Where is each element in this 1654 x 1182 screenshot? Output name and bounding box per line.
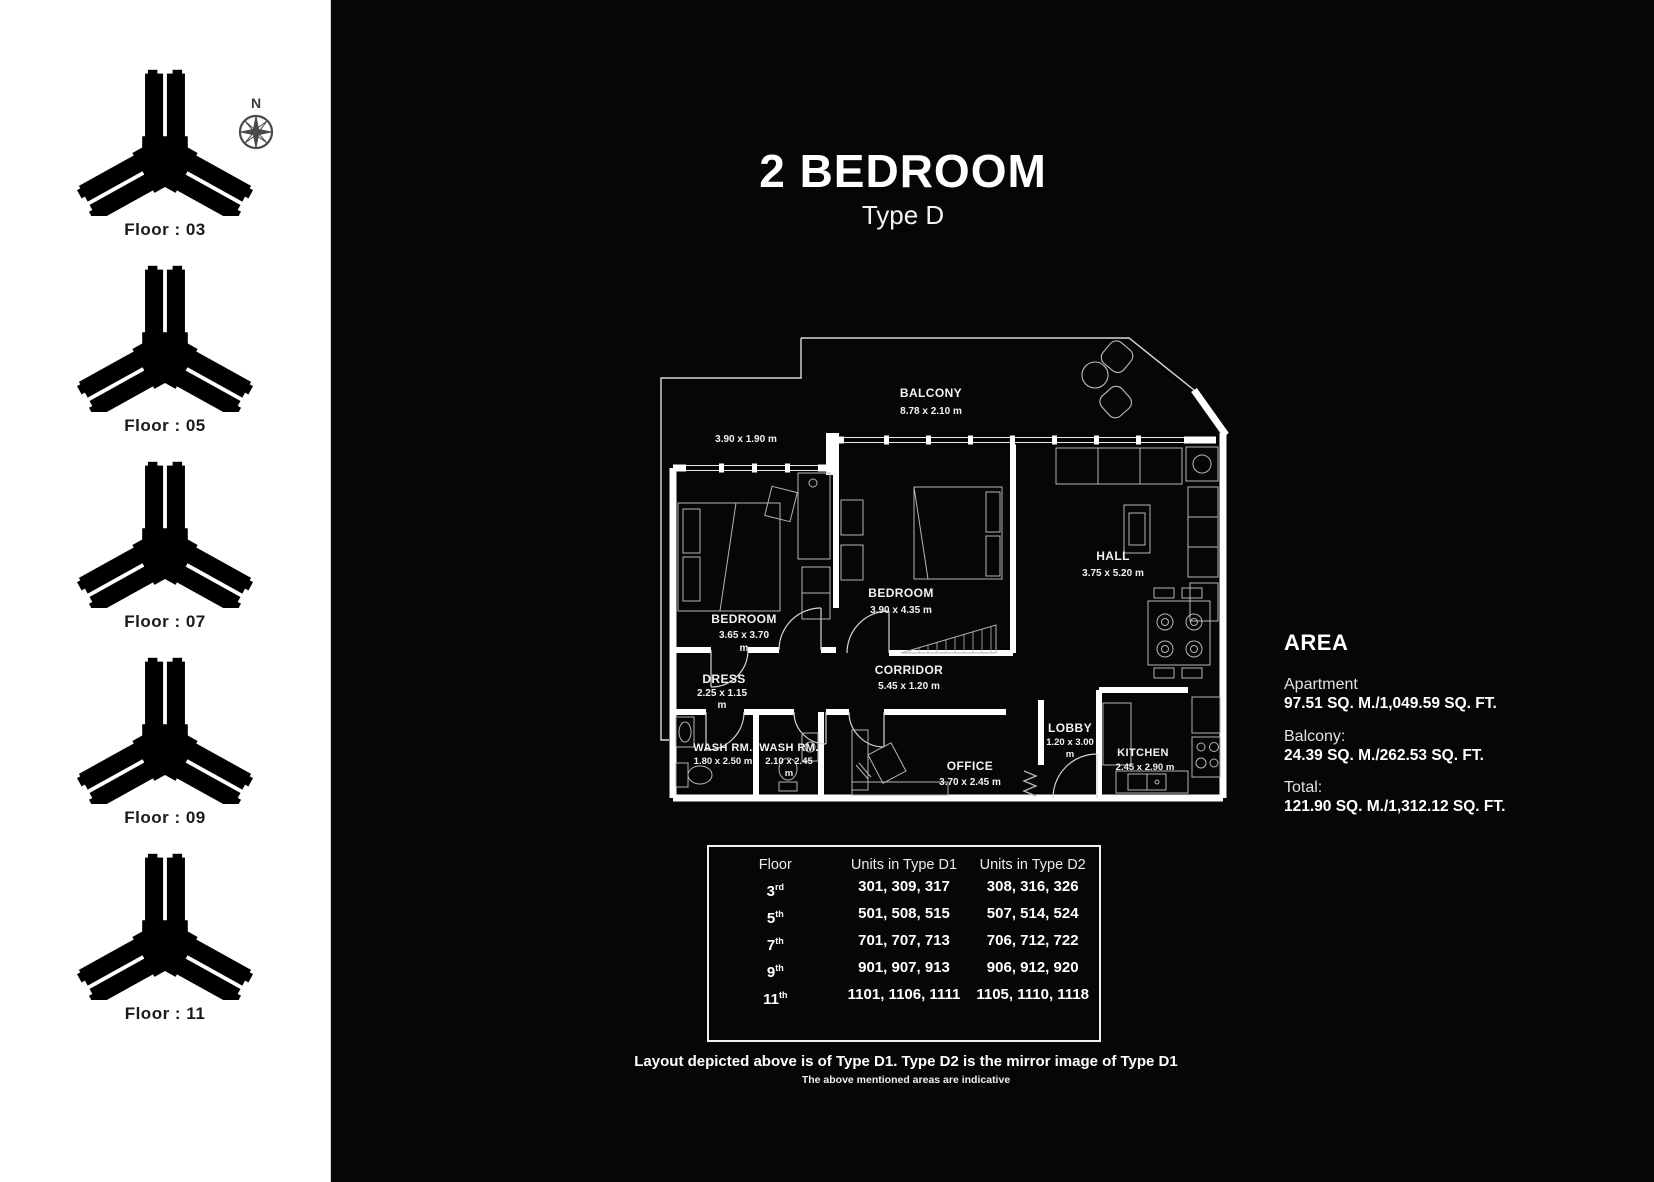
area-item-value: 97.51 SQ. M./1,049.59 SQ. FT. xyxy=(1284,694,1604,714)
room-label-bedroom1: BEDROOM xyxy=(711,612,776,626)
key-plan-floor-05: Floor : 05 xyxy=(0,262,330,436)
area-item-label: Balcony: xyxy=(1284,728,1604,746)
room-label-kitchen: KITCHEN xyxy=(1117,747,1169,759)
cell-units-d1: 701, 707, 713 xyxy=(842,930,967,957)
tower-plan-icon xyxy=(76,850,254,1000)
balcony-furniture xyxy=(1082,338,1136,421)
area-heading: AREA xyxy=(1284,630,1604,656)
bedroom1-furniture xyxy=(678,473,830,619)
room-dims-bedroom2: 3.90 x 4.35 m xyxy=(870,605,932,616)
col-header-type-d2: Units in Type D2 xyxy=(966,854,1099,876)
tower-plan-icon xyxy=(76,458,254,608)
floor-label: Floor : 09 xyxy=(0,808,330,828)
table-row: 7th 701, 707, 713 706, 712, 722 xyxy=(709,930,1099,957)
area-item-label: Apartment xyxy=(1284,676,1604,694)
area-item-apartment: Apartment 97.51 SQ. M./1,049.59 SQ. FT. xyxy=(1284,676,1604,715)
footer-note-main: Layout depicted above is of Type D1. Typ… xyxy=(606,1053,1206,1070)
room-label-washrm2: WASH RM. xyxy=(759,742,818,754)
footer-note-disclaimer: The above mentioned areas are indicative xyxy=(606,1074,1206,1086)
cell-units-d2: 1105, 1110, 1118 xyxy=(966,984,1099,1011)
key-plan-sidebar: N xyxy=(0,0,330,1182)
table-row: 3rd 301, 309, 317 308, 316, 326 xyxy=(709,876,1099,903)
room-dims-lobby: 1.20 x 3.00 xyxy=(1046,737,1094,748)
cell-units-d2: 308, 316, 326 xyxy=(966,876,1099,903)
cell-floor: 5th xyxy=(709,903,842,930)
room-dims-office: 3.70 x 2.45 m xyxy=(939,777,1001,788)
key-plan-floor-07: Floor : 07 xyxy=(0,458,330,632)
room-dims2-dress: m xyxy=(718,700,727,711)
area-panel: AREA Apartment 97.51 SQ. M./1,049.59 SQ.… xyxy=(1284,630,1604,831)
cell-floor: 11th xyxy=(709,984,842,1011)
area-item-total: Total: 121.90 SQ. M./1,312.12 SQ. FT. xyxy=(1284,779,1604,818)
room-label-office: OFFICE xyxy=(947,759,993,773)
units-table: Floor Units in Type D1 Units in Type D2 … xyxy=(707,845,1101,1042)
hall-furniture xyxy=(1056,447,1218,678)
cell-units-d2: 906, 912, 920 xyxy=(966,957,1099,984)
floor-label: Floor : 11 xyxy=(0,1004,330,1024)
area-item-value: 24.39 SQ. M./262.53 SQ. FT. xyxy=(1284,746,1604,766)
floor-label: Floor : 05 xyxy=(0,416,330,436)
room-dims-washrm1: 1.80 x 2.50 m xyxy=(694,756,753,767)
tower-plan-icon xyxy=(76,66,254,216)
room-dims-hall: 3.75 x 5.20 m xyxy=(1082,568,1144,579)
cell-floor: 3rd xyxy=(709,876,842,903)
room-dims-bedroom1: 3.65 x 3.70 xyxy=(719,630,769,641)
tower-plan-icon xyxy=(76,262,254,412)
room-label-balcony: BALCONY xyxy=(900,386,962,400)
floor-label: Floor : 07 xyxy=(0,612,330,632)
table-row: 9th 901, 907, 913 906, 912, 920 xyxy=(709,957,1099,984)
area-item-label: Total: xyxy=(1284,779,1604,797)
units-table-header: Floor Units in Type D1 Units in Type D2 xyxy=(709,854,1099,876)
room-dims2-lobby: m xyxy=(1066,749,1074,760)
brochure-page: N xyxy=(0,0,1654,1182)
key-plan-floor-09: Floor : 09 xyxy=(0,654,330,828)
col-header-floor: Floor xyxy=(709,854,842,876)
cell-floor: 7th xyxy=(709,930,842,957)
floor-label: Floor : 03 xyxy=(0,220,330,240)
page-subtitle: Type D xyxy=(643,200,1163,231)
footer-notes: Layout depicted above is of Type D1. Typ… xyxy=(606,1053,1206,1086)
room-label-dress: DRESS xyxy=(702,672,745,686)
room-dims2-bedroom1: m xyxy=(740,643,749,654)
room-dims-dress: 2.25 x 1.15 xyxy=(697,688,747,699)
room-label-washrm1: WASH RM. xyxy=(693,742,752,754)
cell-units-d2: 507, 514, 524 xyxy=(966,903,1099,930)
room-label-bedroom2: BEDROOM xyxy=(868,586,933,600)
cell-units-d1: 301, 309, 317 xyxy=(842,876,967,903)
room-labels: BALCONY 8.78 x 2.10 m 3.90 x 1.90 m BEDR… xyxy=(693,386,1174,788)
area-item-value: 121.90 SQ. M./1,312.12 SQ. FT. xyxy=(1284,797,1604,817)
key-plan-floor-03: Floor : 03 xyxy=(0,66,330,240)
table-row: 11th 1101, 1106, 1111 1105, 1110, 1118 xyxy=(709,984,1099,1011)
washroom-fixtures xyxy=(676,717,818,791)
room-label-corridor: CORRIDOR xyxy=(875,663,944,677)
room-dims-balcony: 8.78 x 2.10 m xyxy=(900,406,962,417)
floor-plan-drawing: BALCONY 8.78 x 2.10 m 3.90 x 1.90 m BEDR… xyxy=(616,305,1236,805)
room-label-lobby: LOBBY xyxy=(1048,721,1092,735)
cell-units-d1: 501, 508, 515 xyxy=(842,903,967,930)
cell-units-d1: 1101, 1106, 1111 xyxy=(842,984,967,1011)
tower-plan-icon xyxy=(76,654,254,804)
room-dims-corridor: 5.45 x 1.20 m xyxy=(878,681,940,692)
main-panel: 2 BEDROOM Type D xyxy=(330,0,1654,1182)
kitchen-furniture xyxy=(1103,697,1220,793)
room-dims2-washrm2: m xyxy=(785,768,793,779)
table-row: 5th 501, 508, 515 507, 514, 524 xyxy=(709,903,1099,930)
room-dims-kitchen: 2.45 x 2.90 m xyxy=(1116,762,1175,773)
col-header-type-d1: Units in Type D1 xyxy=(842,854,967,876)
page-title: 2 BEDROOM xyxy=(643,144,1163,198)
key-plan-floor-11: Floor : 11 xyxy=(0,850,330,1024)
cell-floor: 9th xyxy=(709,957,842,984)
bedroom2-furniture xyxy=(841,487,1002,653)
cell-units-d2: 706, 712, 722 xyxy=(966,930,1099,957)
room-dims-balcony2: 3.90 x 1.90 m xyxy=(715,434,777,445)
room-label-hall: HALL xyxy=(1096,549,1130,563)
room-dims-washrm2: 2.10 x 2.45 xyxy=(765,756,813,767)
area-item-balcony: Balcony: 24.39 SQ. M./262.53 SQ. FT. xyxy=(1284,728,1604,767)
cell-units-d1: 901, 907, 913 xyxy=(842,957,967,984)
